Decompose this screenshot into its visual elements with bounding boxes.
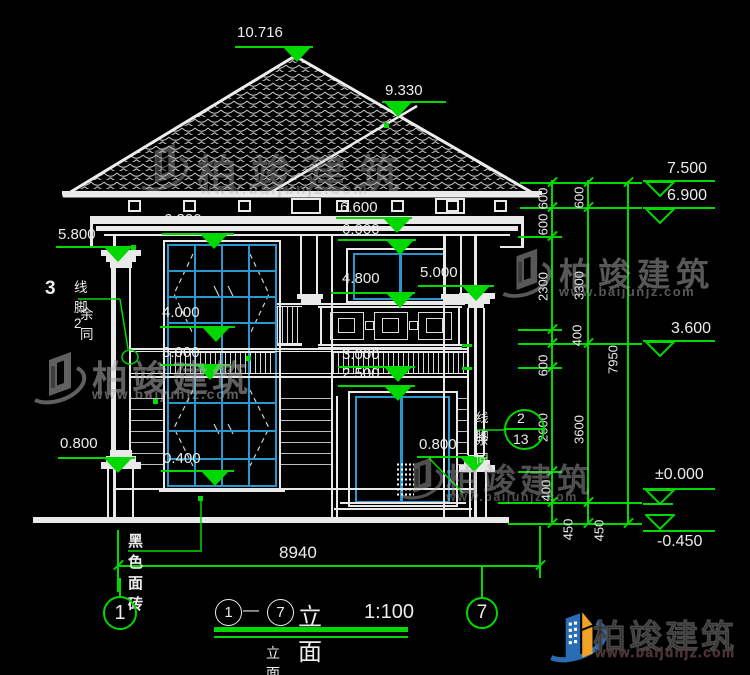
- elevation-value: 9.330: [385, 83, 423, 100]
- elevation-triangle: [202, 327, 230, 342]
- leader-lines: [0, 0, 750, 675]
- elevation-triangle: [645, 514, 675, 531]
- elevation-triangle: [386, 240, 414, 255]
- title-axis-to-circle: 7: [267, 599, 294, 626]
- elevation-triangle: [104, 247, 132, 262]
- chain-dim-label: 600: [572, 176, 587, 220]
- elevation-value: 6.000: [342, 222, 380, 239]
- elevation-triangle: [201, 471, 229, 486]
- elevation-value: 4.000: [162, 305, 200, 322]
- elevation-value: -0.450: [657, 533, 702, 551]
- title-note: 立面以效果图为准: [266, 643, 281, 675]
- elevation-value: ±0.000: [655, 466, 704, 484]
- elevation-drawing-canvas: 10.7169.3307.5006.9006.6006.3006.0005.80…: [0, 0, 750, 675]
- axis-bubble-1: 1: [103, 596, 137, 630]
- elevation-triangle: [283, 47, 311, 62]
- elevation-triangle: [200, 234, 228, 249]
- chain-dim-label: 600: [536, 203, 551, 247]
- left-ref-number: 3: [45, 278, 56, 300]
- elevation-value: 6.600: [340, 200, 378, 217]
- elevation-triangle: [384, 367, 412, 382]
- elevation-triangle: [462, 286, 490, 301]
- site-logo-url: www.baijunjz.com: [595, 645, 736, 660]
- elevation-triangle: [645, 489, 675, 506]
- title-axis-from-circle: 1: [215, 599, 242, 626]
- elevation-triangle: [645, 341, 675, 358]
- elevation-value: 10.716: [237, 25, 283, 42]
- chain-dim-label: 450: [561, 508, 576, 552]
- elevation-value: 3.600: [671, 320, 711, 338]
- title-dash: —: [243, 602, 259, 620]
- elevation-triangle: [384, 386, 412, 401]
- elevation-value: 7.500: [667, 160, 707, 178]
- watermark-logo-icon: [396, 452, 444, 508]
- title-underline-thick: [214, 627, 408, 632]
- drawing-scale: 1:100: [364, 601, 414, 624]
- elevation-triangle: [384, 102, 412, 117]
- elevation-value: 6.300: [164, 212, 202, 229]
- elevation-triangle: [383, 218, 411, 233]
- elevation-value: 6.900: [667, 187, 707, 205]
- elevation-value: 5.000: [420, 265, 458, 282]
- elevation-value: 0.400: [163, 451, 201, 468]
- chain-dim-label: 3600: [572, 408, 587, 452]
- chain-dim-label: 450: [592, 509, 607, 553]
- chain-dim-label: 400: [570, 314, 585, 358]
- chain-dim-label: 7950: [606, 338, 621, 382]
- watermark-logo-icon: [133, 140, 191, 198]
- molding2-note-line2: 余同: [80, 303, 94, 343]
- elevation-triangle: [386, 293, 414, 308]
- axis-bubble-7: 7: [466, 597, 498, 629]
- detail-callout-divider: [504, 428, 545, 430]
- elevation-triangle: [104, 458, 132, 473]
- elevation-value: 5.800: [58, 227, 96, 244]
- detail-number: 2: [517, 410, 525, 426]
- elevation-value: 0.800: [60, 436, 98, 453]
- title-underline-thin: [214, 636, 408, 638]
- elevation-value: 3.000: [342, 347, 380, 364]
- overall-width-dim: 8940: [279, 543, 317, 563]
- chain-dim-label: 600: [536, 344, 551, 388]
- detail-sheet: 13: [513, 431, 529, 447]
- watermark-logo-icon: [495, 245, 553, 305]
- elevation-triangle: [645, 208, 675, 225]
- elevation-value: 2.500: [342, 366, 380, 383]
- watermark-logo-icon: [26, 348, 88, 412]
- elevation-value: 4.800: [342, 271, 380, 288]
